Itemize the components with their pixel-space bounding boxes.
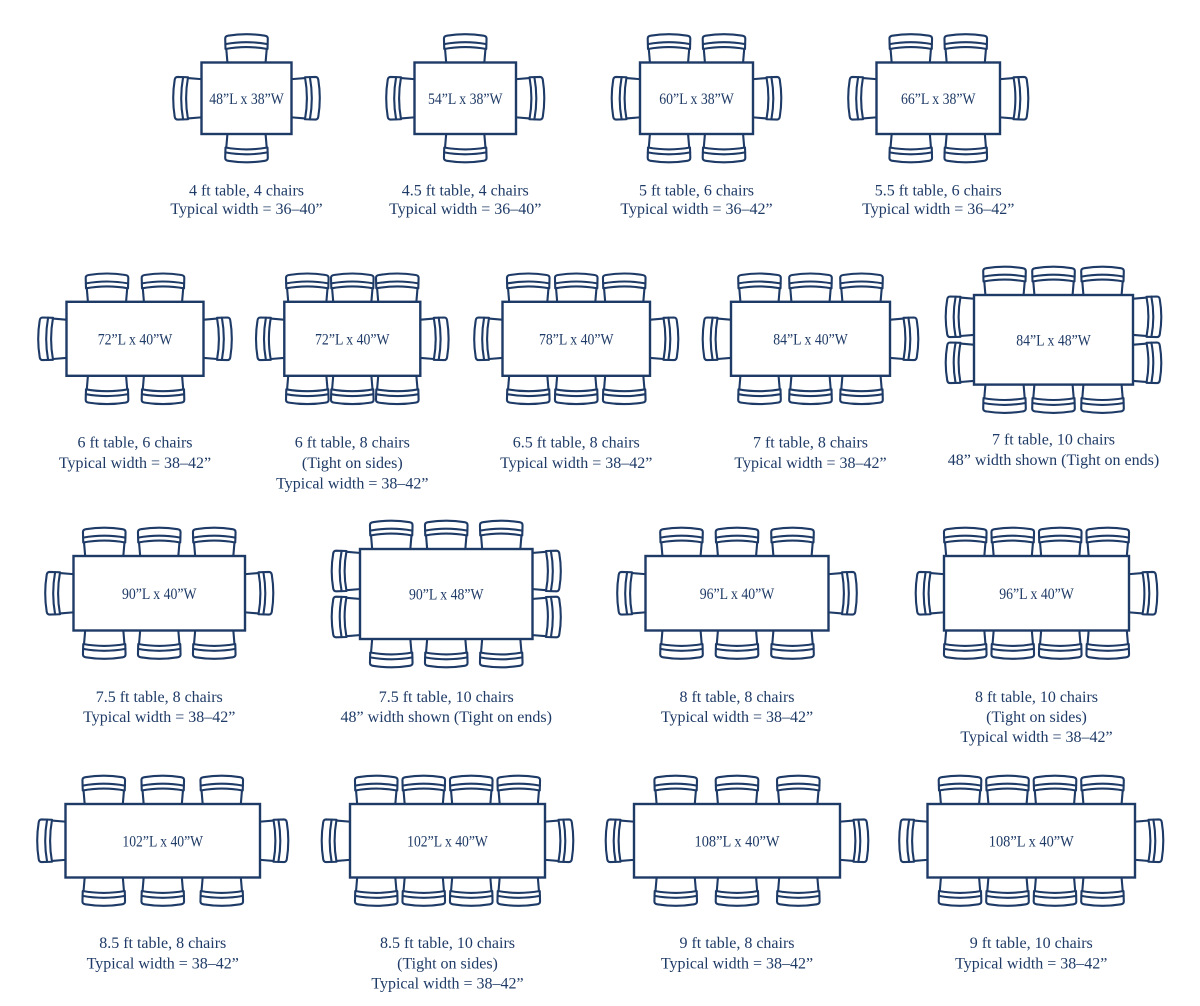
svg-text:Typical width = 38–42”: Typical width = 38–42” <box>83 709 235 726</box>
svg-text:5.5 ft table, 6 chairs: 5.5 ft table, 6 chairs <box>875 183 1002 200</box>
svg-text:48” width shown (Tight on ends: 48” width shown (Tight on ends) <box>948 452 1159 469</box>
svg-text:72”L x 40”W: 72”L x 40”W <box>315 331 390 348</box>
svg-text:7 ft table, 8 chairs: 7 ft table, 8 chairs <box>753 435 868 452</box>
svg-text:7.5 ft table, 10 chairs: 7.5 ft table, 10 chairs <box>379 689 514 706</box>
svg-text:(Tight on sides): (Tight on sides) <box>302 455 403 472</box>
svg-text:108”L x 40”W: 108”L x 40”W <box>695 833 780 850</box>
svg-text:96”L x 40”W: 96”L x 40”W <box>999 586 1074 603</box>
svg-text:66”L x 38”W: 66”L x 38”W <box>901 91 976 108</box>
svg-text:(Tight on sides): (Tight on sides) <box>397 956 498 973</box>
svg-text:84”L x 40”W: 84”L x 40”W <box>773 331 848 348</box>
svg-text:60”L x 38”W: 60”L x 38”W <box>659 91 734 108</box>
svg-text:9 ft table, 8 chairs: 9 ft table, 8 chairs <box>679 935 794 952</box>
svg-text:Typical width = 38–42”: Typical width = 38–42” <box>87 956 239 973</box>
svg-text:90”L x 48”W: 90”L x 48”W <box>409 587 484 604</box>
svg-text:Typical width = 38–42”: Typical width = 38–42” <box>734 455 886 472</box>
svg-text:(Tight on sides): (Tight on sides) <box>986 709 1087 726</box>
svg-text:84”L x 48”W: 84”L x 48”W <box>1016 332 1091 349</box>
svg-text:9 ft table, 10 chairs: 9 ft table, 10 chairs <box>970 935 1093 952</box>
svg-text:Typical width = 38–42”: Typical width = 38–42” <box>500 455 652 472</box>
svg-text:8 ft table, 10 chairs: 8 ft table, 10 chairs <box>975 689 1098 706</box>
svg-text:102”L x 40”W: 102”L x 40”W <box>407 833 488 850</box>
svg-text:6 ft table, 8 chairs: 6 ft table, 8 chairs <box>295 435 410 452</box>
svg-text:Typical width = 36–42”: Typical width = 36–42” <box>620 201 772 218</box>
svg-text:8 ft table, 8 chairs: 8 ft table, 8 chairs <box>679 689 794 706</box>
svg-text:6 ft table, 6 chairs: 6 ft table, 6 chairs <box>77 435 192 452</box>
svg-text:48”L x 38”W: 48”L x 38”W <box>209 91 284 108</box>
svg-text:Typical width = 36–40”: Typical width = 36–40” <box>170 201 322 218</box>
svg-text:5 ft table, 6 chairs: 5 ft table, 6 chairs <box>639 183 754 200</box>
svg-text:7.5 ft table, 8 chairs: 7.5 ft table, 8 chairs <box>96 689 223 706</box>
svg-text:Typical width = 38–42”: Typical width = 38–42” <box>960 729 1112 746</box>
svg-text:Typical width = 36–42”: Typical width = 36–42” <box>862 201 1014 218</box>
svg-text:Typical width = 38–42”: Typical width = 38–42” <box>276 476 428 493</box>
svg-text:6.5 ft table, 8 chairs: 6.5 ft table, 8 chairs <box>513 435 640 452</box>
svg-text:Typical width = 36–40”: Typical width = 36–40” <box>389 201 541 218</box>
svg-text:48” width shown (Tight on ends: 48” width shown (Tight on ends) <box>341 709 552 726</box>
svg-text:8.5 ft table, 8 chairs: 8.5 ft table, 8 chairs <box>99 935 226 952</box>
svg-text:78”L x 40”W: 78”L x 40”W <box>539 331 614 348</box>
svg-text:Typical width = 38–42”: Typical width = 38–42” <box>661 956 813 973</box>
svg-text:72”L x 40”W: 72”L x 40”W <box>98 331 173 348</box>
svg-text:108”L x 40”W: 108”L x 40”W <box>989 833 1074 850</box>
svg-text:102”L x 40”W: 102”L x 40”W <box>122 833 203 850</box>
svg-text:Typical width = 38–42”: Typical width = 38–42” <box>59 455 211 472</box>
svg-text:Typical width = 38–42”: Typical width = 38–42” <box>955 956 1107 973</box>
svg-text:4.5 ft table, 4 chairs: 4.5 ft table, 4 chairs <box>402 183 529 200</box>
svg-text:Typical width = 38–42”: Typical width = 38–42” <box>661 709 813 726</box>
svg-text:Typical width = 38–42”: Typical width = 38–42” <box>371 976 523 993</box>
svg-text:7 ft table, 10 chairs: 7 ft table, 10 chairs <box>992 432 1115 449</box>
svg-text:8.5 ft table, 10 chairs: 8.5 ft table, 10 chairs <box>380 935 515 952</box>
svg-text:90”L x 40”W: 90”L x 40”W <box>122 586 197 603</box>
svg-text:4 ft table, 4 chairs: 4 ft table, 4 chairs <box>189 183 304 200</box>
svg-text:54”L x 38”W: 54”L x 38”W <box>428 91 503 108</box>
svg-text:96”L x 40”W: 96”L x 40”W <box>700 586 775 603</box>
